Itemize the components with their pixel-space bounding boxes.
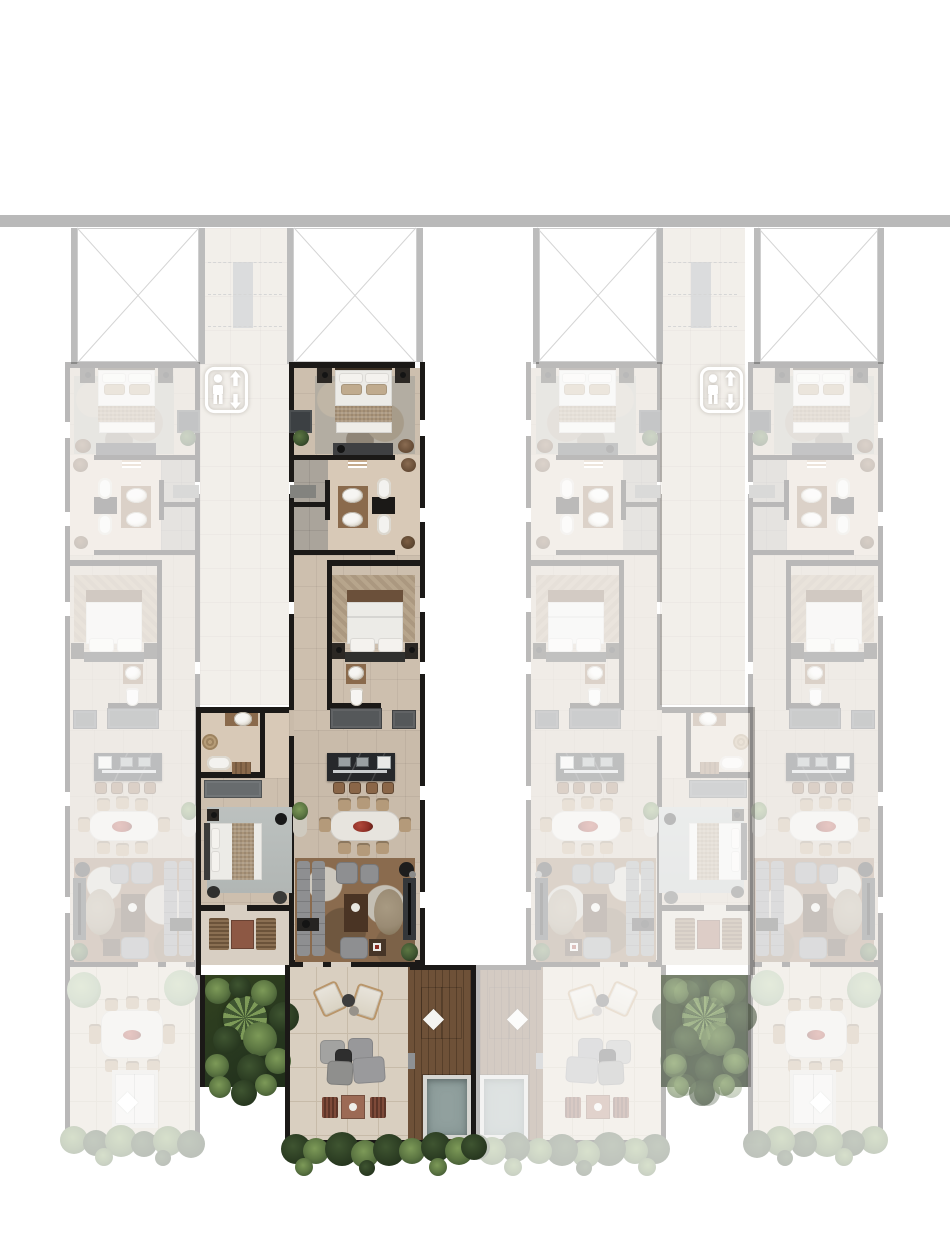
plant	[180, 430, 196, 446]
bathtub	[560, 514, 574, 535]
side-table	[275, 813, 287, 825]
wall	[325, 480, 330, 520]
shower-mat	[635, 485, 661, 498]
pouf	[73, 458, 88, 472]
wall	[289, 550, 395, 555]
chaise	[799, 937, 827, 959]
wall	[748, 455, 854, 460]
sink	[125, 666, 141, 680]
dining-chair	[357, 843, 370, 856]
plant	[860, 943, 877, 961]
wall	[475, 965, 541, 970]
armchair	[131, 862, 153, 884]
room-kitchen-dining	[526, 730, 662, 862]
round-ottoman	[85, 889, 115, 935]
sink	[588, 488, 609, 503]
bar-stool	[366, 782, 378, 794]
bed-bench	[806, 590, 862, 602]
headboard	[84, 652, 144, 662]
side-wall	[657, 228, 663, 364]
terrace-tree	[164, 970, 198, 1006]
sofa	[626, 861, 639, 956]
void-shaft-3	[539, 228, 657, 362]
plant	[643, 802, 659, 820]
dining-chair	[376, 841, 389, 854]
basket	[202, 734, 218, 750]
balcony-chair	[675, 918, 695, 950]
wall	[157, 560, 162, 710]
stool	[273, 891, 287, 904]
bathtub	[560, 478, 574, 499]
wicker-chair	[322, 1097, 338, 1118]
corridor-dash-line	[208, 294, 282, 295]
bar-stool	[144, 782, 156, 794]
armchair	[360, 864, 379, 884]
bar-stool	[111, 782, 123, 794]
dining-chair	[338, 798, 351, 811]
wall	[748, 550, 854, 555]
round-ottoman	[374, 889, 404, 935]
wall	[65, 362, 70, 965]
building-slab-bar	[0, 215, 950, 227]
wall	[626, 502, 662, 507]
coffee-table	[803, 894, 827, 932]
terrace-tree	[67, 972, 101, 1008]
bathtub	[207, 756, 231, 770]
tv	[408, 883, 411, 935]
plant	[533, 943, 550, 961]
closet	[392, 710, 416, 729]
dining-chair	[540, 817, 552, 832]
bathtub	[836, 478, 850, 499]
sink	[234, 712, 252, 726]
dining-chair	[788, 998, 801, 1011]
dining-chair	[562, 841, 575, 854]
side-wall	[878, 228, 884, 364]
kitchen-sink	[138, 757, 151, 767]
centerpiece	[807, 1030, 825, 1040]
wall	[159, 480, 164, 520]
sofa-tray	[170, 918, 192, 931]
stair-shaft	[233, 262, 253, 328]
nightstand	[144, 643, 157, 659]
bed-blanket	[697, 823, 719, 880]
closet	[535, 710, 559, 729]
closet	[569, 708, 621, 729]
dining-chair	[809, 996, 822, 1009]
bathtub	[98, 478, 112, 499]
closet	[107, 708, 159, 729]
sofa	[771, 861, 784, 956]
elevator-icon-2	[699, 366, 744, 414]
closet	[204, 780, 262, 798]
bar-stool	[825, 782, 837, 794]
wall	[289, 502, 325, 507]
toilet	[350, 688, 363, 706]
cooktop	[377, 756, 391, 769]
coffee-table	[344, 894, 368, 932]
sofa	[641, 861, 654, 956]
bed-bench	[347, 590, 403, 602]
dining-chair	[116, 796, 129, 809]
pouf	[537, 439, 553, 453]
bed-bench	[548, 590, 604, 602]
corridor-dash-line	[208, 262, 282, 263]
sofa	[312, 861, 325, 956]
dining-chair	[773, 1024, 785, 1044]
dining-chair	[319, 817, 331, 832]
wall	[69, 560, 160, 566]
dining-chair	[116, 843, 129, 856]
dining-chair	[147, 998, 160, 1011]
stool	[74, 536, 88, 549]
plant	[293, 430, 309, 446]
balcony-chair	[722, 918, 742, 950]
wicker-chair	[613, 1097, 629, 1118]
toilet	[809, 688, 822, 706]
stool	[536, 536, 550, 549]
bed-bench	[99, 422, 155, 433]
terrace-tree	[750, 970, 784, 1006]
sink	[126, 488, 147, 503]
cooktop	[836, 756, 850, 769]
sofa	[297, 861, 310, 956]
sink	[699, 712, 717, 726]
plant-pot	[207, 886, 220, 898]
dining-chair	[562, 798, 575, 811]
stool	[664, 891, 678, 904]
closet	[851, 710, 875, 729]
wall	[410, 965, 476, 970]
sink	[587, 666, 603, 680]
corridor-dash-line	[208, 326, 282, 327]
terrace-tree	[847, 972, 881, 1008]
stair-shaft	[691, 262, 711, 328]
wall	[748, 502, 784, 507]
balcony-table	[697, 920, 720, 949]
wall	[619, 560, 624, 710]
bathtub	[377, 478, 391, 499]
bar-stool	[382, 782, 394, 794]
dining-chair	[89, 1024, 101, 1044]
dining-chair	[126, 996, 139, 1009]
nightstand	[791, 643, 804, 659]
armchair	[572, 864, 591, 884]
side-table	[664, 813, 676, 825]
dining-chair	[858, 817, 870, 832]
wall	[94, 550, 200, 555]
dining-chair	[838, 798, 851, 811]
wall	[621, 480, 626, 520]
wall	[260, 707, 265, 778]
chaise	[340, 937, 368, 959]
centerpiece	[123, 1030, 141, 1040]
sink	[801, 488, 822, 503]
side-table	[75, 862, 90, 877]
corridor-2	[660, 228, 745, 705]
pouf	[401, 458, 416, 472]
media-bench	[792, 443, 852, 455]
towel-shelf	[807, 460, 826, 468]
room-kitchen-dining	[65, 730, 200, 862]
towel-shelf	[584, 460, 603, 468]
kitchen-sink	[797, 757, 810, 767]
ottoman	[565, 1056, 599, 1084]
wall	[556, 497, 579, 514]
wall	[556, 550, 662, 555]
bar-stool	[95, 782, 107, 794]
corridor-dash-line	[668, 262, 737, 263]
wall	[531, 560, 622, 566]
dining-chair	[78, 817, 90, 832]
headboard	[804, 652, 864, 662]
dining-chair	[800, 798, 813, 811]
shower-mat	[749, 485, 775, 498]
bath-bench	[232, 762, 251, 774]
plant	[292, 802, 308, 820]
nightstand	[864, 643, 877, 659]
dining-chair	[163, 1024, 175, 1044]
sink	[342, 512, 363, 527]
kitchen-sink	[582, 757, 595, 767]
closet	[73, 710, 97, 729]
closet	[789, 708, 841, 729]
dining-chair	[581, 796, 594, 809]
side-wall	[199, 228, 205, 364]
side-wall	[417, 228, 423, 364]
plant	[752, 430, 768, 446]
sink	[342, 488, 363, 503]
towel-shelf	[348, 460, 367, 468]
bed-blanket	[232, 823, 254, 880]
pouf	[860, 458, 875, 472]
wall	[289, 455, 395, 460]
bed-bench	[793, 422, 849, 433]
armchair	[593, 862, 615, 884]
plant	[642, 430, 658, 446]
armchair	[819, 864, 838, 884]
void-shaft-2	[293, 228, 417, 362]
wall	[329, 560, 420, 566]
coffee-table	[121, 894, 145, 932]
side-table	[596, 994, 609, 1007]
side-table	[828, 939, 845, 956]
wicker-chair	[565, 1097, 581, 1118]
tv	[867, 883, 870, 935]
bar-stool	[841, 782, 853, 794]
balcony-chair	[256, 918, 276, 950]
pouf	[535, 458, 550, 472]
chaise	[121, 937, 149, 959]
bath-bench	[700, 762, 719, 774]
corridor-dash-line	[668, 294, 737, 295]
wall	[788, 560, 879, 566]
bathtub	[98, 514, 112, 535]
shower-mat	[173, 485, 199, 498]
kitchen-sink	[120, 757, 133, 767]
floor-plate	[0, 0, 950, 1241]
wall	[200, 975, 205, 1087]
pool-water	[484, 1079, 524, 1135]
centerpiece	[112, 821, 132, 832]
cooktop	[560, 756, 574, 769]
bar-stool	[557, 782, 569, 794]
centerpiece	[578, 821, 598, 832]
bar-stool	[792, 782, 804, 794]
plant	[401, 943, 418, 961]
wall	[686, 707, 691, 778]
sink	[807, 666, 823, 680]
bed-bench	[86, 590, 142, 602]
dining-chair	[847, 1024, 859, 1044]
wicker-chair	[370, 1097, 386, 1118]
dining-chair	[357, 796, 370, 809]
centerpiece	[816, 821, 836, 832]
wall	[784, 480, 789, 520]
bar-stool	[606, 782, 618, 794]
dining-chair	[581, 843, 594, 856]
bathtub	[720, 756, 744, 770]
side-table	[103, 939, 120, 956]
pool-water	[427, 1079, 467, 1135]
kitchen-sink	[600, 757, 613, 767]
round-ottoman	[547, 889, 577, 935]
headboard	[546, 652, 606, 662]
ottoman	[352, 1056, 386, 1084]
wall	[94, 497, 117, 514]
dining-chair	[338, 841, 351, 854]
coffee-table	[583, 894, 607, 932]
bar-stool	[128, 782, 140, 794]
ottoman	[597, 1060, 624, 1085]
corridor-1	[200, 228, 290, 705]
wall	[831, 497, 854, 514]
round-ottoman	[833, 889, 863, 935]
balcony-table	[231, 920, 254, 949]
wall	[164, 502, 200, 507]
plant-pot	[731, 886, 744, 898]
dining-chair	[838, 841, 851, 854]
basket	[733, 734, 749, 750]
bed-blanket	[335, 406, 392, 422]
bar-stool	[808, 782, 820, 794]
wall	[688, 772, 755, 778]
dining-chair	[819, 843, 832, 856]
dining-chair	[135, 798, 148, 811]
dining-chair	[620, 817, 632, 832]
bed-bench	[559, 422, 615, 433]
corridor-dash-line	[668, 326, 737, 327]
armchair	[110, 864, 129, 884]
wall	[878, 362, 883, 965]
wall	[196, 707, 201, 975]
plant	[71, 943, 88, 961]
shower-mat	[290, 485, 316, 498]
balcony-chair	[209, 918, 229, 950]
ottoman	[326, 1060, 353, 1085]
closet	[689, 780, 747, 798]
wall	[94, 455, 200, 460]
dining-chair	[376, 798, 389, 811]
dining-chair	[819, 796, 832, 809]
dining-chair	[800, 841, 813, 854]
dining-chair	[600, 841, 613, 854]
kitchen-sink	[356, 757, 369, 767]
kitchen-sink	[815, 757, 828, 767]
bar-stool	[349, 782, 361, 794]
sink	[588, 512, 609, 527]
void-shaft-1	[77, 228, 199, 362]
toilet	[126, 688, 139, 706]
dining-chair	[600, 798, 613, 811]
side-wall	[71, 228, 77, 364]
stool	[860, 536, 874, 549]
armchair	[336, 862, 358, 884]
dining-chair	[830, 998, 843, 1011]
dining-chair	[778, 817, 790, 832]
side-wall	[533, 228, 539, 364]
plant	[181, 802, 197, 820]
headboard	[741, 823, 747, 880]
dining-chair	[135, 841, 148, 854]
floor-plan-canvas	[0, 0, 950, 1241]
bar-stool	[573, 782, 585, 794]
sofa	[756, 861, 769, 956]
towel-shelf	[122, 460, 141, 468]
wall	[556, 455, 662, 460]
centerpiece	[353, 821, 373, 832]
cooktop	[98, 756, 112, 769]
deck-fixture	[408, 1053, 415, 1069]
room-kitchen-dining	[748, 730, 883, 862]
dining-chair	[97, 798, 110, 811]
wall	[750, 707, 755, 975]
side-table	[858, 862, 873, 877]
pouf	[398, 439, 414, 453]
nightstand	[71, 643, 84, 659]
bar-stool	[590, 782, 602, 794]
dining-chair	[105, 998, 118, 1011]
headboard	[345, 652, 405, 662]
toilet	[588, 688, 601, 706]
side-wall	[754, 228, 760, 364]
wall	[196, 772, 263, 778]
bed-blanket	[559, 406, 616, 422]
pouf	[857, 439, 873, 453]
chaise	[583, 937, 611, 959]
dining-chair	[97, 841, 110, 854]
armchair	[795, 862, 817, 884]
dining-chair	[158, 817, 170, 832]
kitchen-sink	[338, 757, 351, 767]
dining-chair	[399, 817, 411, 832]
sofa	[164, 861, 177, 956]
sofa-tray	[756, 918, 778, 931]
sink	[801, 512, 822, 527]
side-wall	[287, 228, 293, 364]
media-bench	[96, 443, 156, 455]
closet	[330, 708, 382, 729]
wall	[471, 965, 476, 1145]
elevator-icon-1	[204, 366, 249, 414]
bed-bench	[336, 422, 392, 433]
bed-blanket	[793, 406, 850, 422]
bar-stool	[333, 782, 345, 794]
tv	[78, 883, 81, 935]
pouf	[75, 439, 91, 453]
sink	[348, 666, 364, 680]
deck-fixture	[536, 1053, 543, 1069]
